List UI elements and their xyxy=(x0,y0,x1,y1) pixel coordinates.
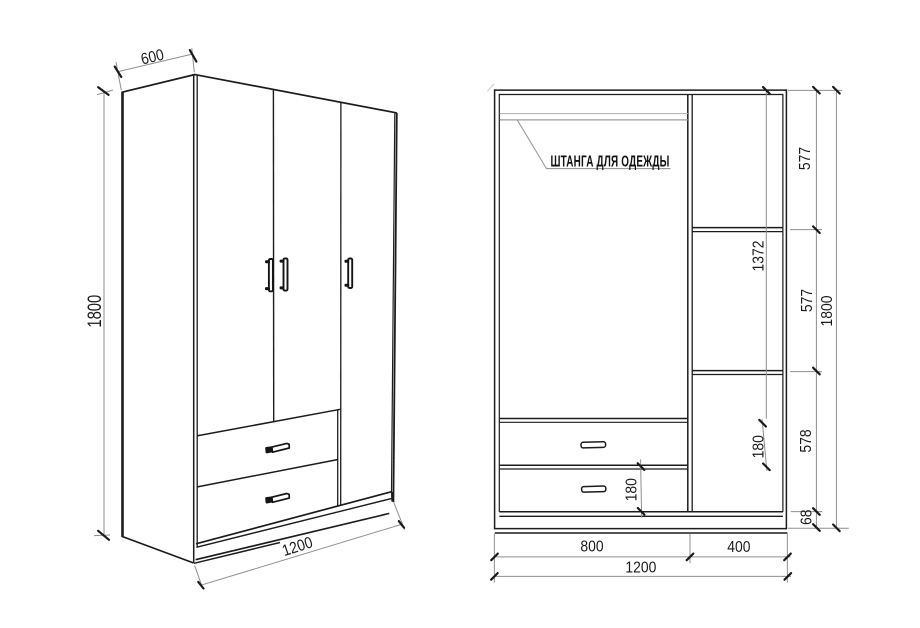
svg-text:68: 68 xyxy=(798,510,816,525)
svg-text:180: 180 xyxy=(623,478,641,501)
svg-text:800: 800 xyxy=(580,538,603,556)
svg-text:1800: 1800 xyxy=(818,296,836,327)
svg-text:578: 578 xyxy=(797,429,815,452)
svg-text:577: 577 xyxy=(796,147,814,170)
svg-text:400: 400 xyxy=(727,538,750,556)
svg-text:1372: 1372 xyxy=(750,241,768,272)
svg-text:ШТАНГА ДЛЯ ОДЕЖДЫ: ШТАНГА ДЛЯ ОДЕЖДЫ xyxy=(550,152,669,170)
svg-text:577: 577 xyxy=(798,289,816,312)
svg-text:1200: 1200 xyxy=(625,558,656,576)
svg-text:1800: 1800 xyxy=(84,295,105,328)
svg-text:180: 180 xyxy=(750,435,768,458)
